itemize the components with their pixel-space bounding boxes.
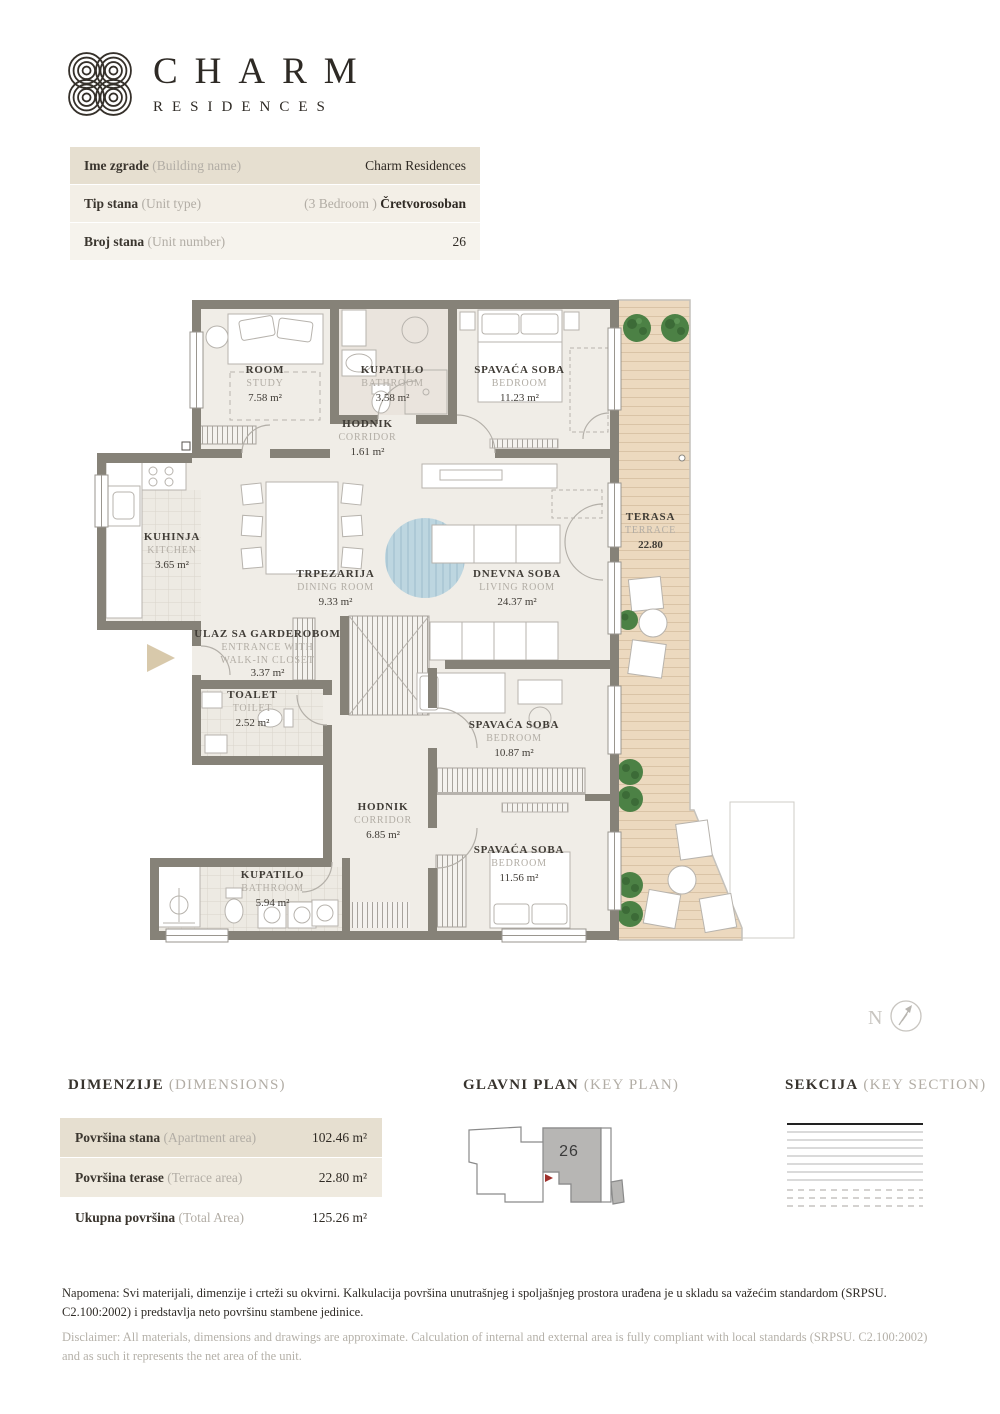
room-label-corridor-2: HODNIKCORRIDOR6.85 m² [322, 800, 444, 842]
room-label-entrance: ULAZ SA GARDEROBOMENTRANCE WITH WALK-IN … [185, 628, 350, 680]
key-plan-unit-highlight [543, 1128, 601, 1202]
dim-row-terrace-area: Površina terase (Terrace area) 22.80 m² [60, 1158, 382, 1198]
info-label: Tip stana (Unit type) [84, 196, 201, 212]
brand-text: CHARM RESIDENCES [153, 52, 374, 116]
key-plan-unit-number: 26 [559, 1143, 579, 1160]
dim-label: Površina terase (Terrace area) [75, 1170, 242, 1186]
info-row-building-name: Ime zgrade (Building name) Charm Residen… [70, 147, 480, 185]
compass-icon: N [862, 993, 932, 1041]
room-label-kitchen: KUHINJAKITCHEN3.65 m² [112, 530, 232, 572]
dim-value: 22.80 m² [319, 1170, 367, 1186]
room-label-corridor-1: HODNIKCORRIDOR1.61 m² [305, 417, 430, 459]
dim-label: Površina stana (Apartment area) [75, 1130, 256, 1146]
room-label-terrace: TERASATERRACE22.80 [598, 510, 703, 552]
info-label: Ime zgrade (Building name) [84, 158, 241, 174]
info-row-unit-type: Tip stana (Unit type) (3 Bedroom ) Čretv… [70, 185, 480, 223]
dim-row-total-area: Ukupna površina (Total Area) 125.26 m² [60, 1198, 382, 1238]
room-label-bedroom-1: SPAVAĆA SOBABEDROOM11.23 m² [447, 363, 592, 405]
room-label-bathroom-top: KUPATILOBATHROOM3.58 m² [330, 363, 455, 405]
compass-north-label: N [868, 1007, 882, 1029]
key-plan-location-arrow [545, 1174, 553, 1182]
info-label: Broj stana (Unit number) [84, 234, 225, 250]
dim-row-apartment-area: Površina stana (Apartment area) 102.46 m… [60, 1118, 382, 1158]
info-value: (3 Bedroom ) Čretvorosoban [304, 196, 466, 212]
dim-value: 125.26 m² [312, 1210, 367, 1226]
brochure-page: CHARM RESIDENCES Ime zgrade (Building na… [0, 0, 1000, 1414]
room-label-toilet: TOALETTOILET2.52 m² [195, 688, 310, 730]
dimensions-heading: DIMENZIJE(DIMENSIONS) [68, 1077, 286, 1094]
neighbour-area [730, 802, 794, 938]
info-value: 26 [453, 234, 467, 250]
room-label-study: ROOMSTUDY7.58 m² [195, 363, 335, 405]
note-disclaimer: Disclaimer: All materials, dimensions an… [62, 1328, 934, 1367]
brand-name: CHARM [153, 52, 374, 92]
info-value: Charm Residences [365, 158, 466, 174]
unit-info-table: Ime zgrade (Building name) Charm Residen… [70, 147, 480, 261]
dimensions-table: Površina stana (Apartment area) 102.46 m… [60, 1118, 382, 1238]
info-row-unit-number: Broj stana (Unit number) 26 [70, 223, 480, 261]
section-lines [787, 1120, 923, 1212]
room-label-bedroom-2: SPAVAĆA SOBABEDROOM10.87 m² [440, 718, 588, 760]
room-label-bedroom-3: SPAVAĆA SOBABEDROOM11.56 m² [445, 843, 593, 885]
key-plan-heading: GLAVNI PLAN(KEY PLAN) [463, 1077, 679, 1094]
note-napomena: Napomena: Svi materijali, dimenzije i cr… [62, 1284, 934, 1323]
brand-subtitle: RESIDENCES [153, 99, 374, 116]
room-label-living: DNEVNA SOBALIVING ROOM24.37 m² [443, 567, 591, 609]
key-plan-drawing: 26 [465, 1122, 635, 1217]
plan-marker [182, 442, 190, 450]
room-label-bathroom-bottom: KUPATILOBATHROOM5.94 m² [210, 868, 335, 910]
brand-logo-icon [56, 40, 144, 128]
room-label-dining: TRPEZARIJADINING ROOM9.33 m² [263, 567, 408, 609]
entrance-arrow-icon [147, 644, 175, 672]
section-heading: SEKCIJA(KEY SECTION) [785, 1077, 986, 1094]
dim-label: Ukupna površina (Total Area) [75, 1210, 244, 1226]
dim-value: 102.46 m² [312, 1130, 367, 1146]
